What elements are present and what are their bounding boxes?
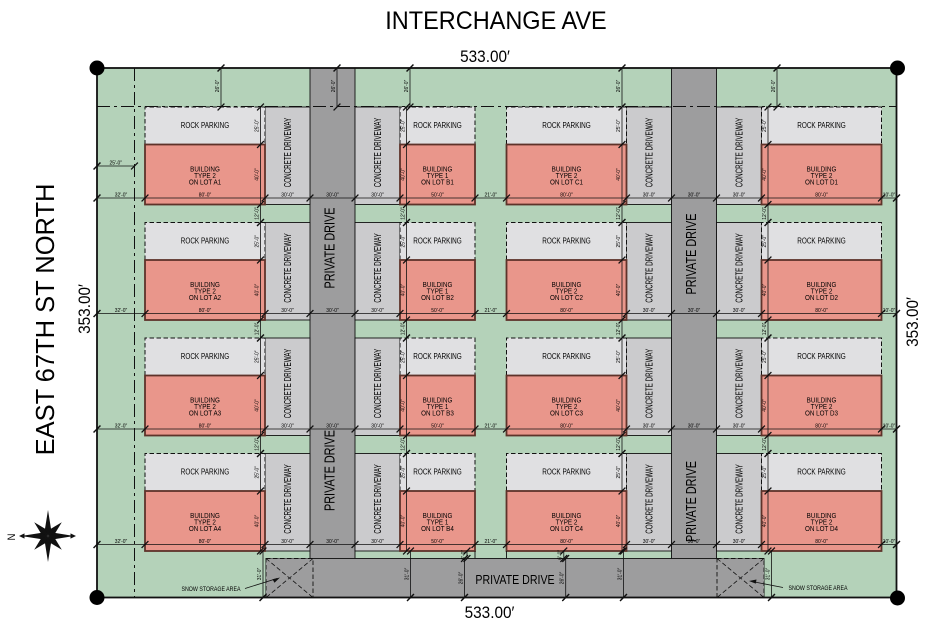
svg-text:80'-0": 80'-0" <box>815 539 828 545</box>
svg-text:CONCRETE DRIVEWAY: CONCRETE DRIVEWAY <box>373 464 384 534</box>
svg-text:21'-0": 21'-0" <box>484 423 497 429</box>
svg-text:26′-0″: 26′-0″ <box>771 80 777 93</box>
svg-text:12′-0″: 12′-0″ <box>254 323 260 336</box>
svg-text:ROCK PARKING: ROCK PARKING <box>413 120 462 130</box>
svg-text:30'-0": 30'-0" <box>733 192 746 198</box>
svg-text:12′-0″: 12′-0″ <box>400 323 406 336</box>
svg-text:25′-0″: 25′-0″ <box>109 160 122 166</box>
svg-text:ROCK PARKING: ROCK PARKING <box>181 351 230 361</box>
svg-text:40′-0″: 40′-0″ <box>400 284 406 297</box>
svg-text:31′-0″: 31′-0″ <box>257 568 263 581</box>
svg-text:ROCK PARKING: ROCK PARKING <box>181 236 230 246</box>
svg-text:PRIVATE DRIVE: PRIVATE DRIVE <box>475 573 555 587</box>
svg-text:30'-0": 30'-0" <box>326 192 339 198</box>
svg-text:ON LOT D4: ON LOT D4 <box>805 525 838 533</box>
svg-text:25′-0″: 25′-0″ <box>254 235 260 248</box>
svg-text:30'-0": 30'-0" <box>326 539 339 545</box>
svg-text:6′-0″: 6′-0″ <box>461 550 467 560</box>
svg-text:PRIVATE DRIVE: PRIVATE DRIVE <box>321 430 338 511</box>
svg-text:25′-0″: 25′-0″ <box>762 466 768 479</box>
svg-text:31′-0″: 31′-0″ <box>404 568 410 581</box>
svg-text:32'-0": 32'-0" <box>115 423 128 429</box>
svg-text:30'-0": 30'-0" <box>371 423 384 429</box>
svg-text:40′-0″: 40′-0″ <box>400 399 406 412</box>
svg-text:PRIVATE DRIVE: PRIVATE DRIVE <box>682 461 699 542</box>
svg-text:40′-0″: 40′-0″ <box>254 399 260 412</box>
svg-text:26′-0″: 26′-0″ <box>616 80 622 93</box>
svg-text:21'-0": 21'-0" <box>484 192 497 198</box>
svg-text:25′-0″: 25′-0″ <box>400 466 406 479</box>
svg-text:80'-0": 80'-0" <box>815 423 828 429</box>
svg-text:50'-0": 50'-0" <box>431 192 444 198</box>
svg-text:40′-0″: 40′-0″ <box>616 399 622 412</box>
svg-text:ROCK PARKING: ROCK PARKING <box>413 236 462 246</box>
svg-text:80'-0": 80'-0" <box>199 423 212 429</box>
svg-text:25′-0″: 25′-0″ <box>616 466 622 479</box>
svg-text:30'-0": 30'-0" <box>371 192 384 198</box>
svg-text:ON LOT C1: ON LOT C1 <box>550 179 583 187</box>
svg-text:INTERCHANGE AVE: INTERCHANGE AVE <box>385 7 606 35</box>
svg-text:CONCRETE DRIVEWAY: CONCRETE DRIVEWAY <box>373 233 384 303</box>
svg-text:ROCK PARKING: ROCK PARKING <box>181 467 230 477</box>
svg-text:25′-0″: 25′-0″ <box>762 119 768 132</box>
svg-text:32'-0": 32'-0" <box>115 539 128 545</box>
svg-text:12′-0″: 12′-0″ <box>616 207 622 220</box>
svg-text:25′-0″: 25′-0″ <box>254 350 260 363</box>
svg-text:26′-0″: 26′-0″ <box>331 80 337 93</box>
svg-text:ROCK PARKING: ROCK PARKING <box>542 120 591 130</box>
svg-text:30'-0": 30'-0" <box>688 192 701 198</box>
svg-text:ON LOT A3: ON LOT A3 <box>189 410 222 418</box>
svg-text:50'-0": 50'-0" <box>431 308 444 314</box>
svg-text:80'-0": 80'-0" <box>815 308 828 314</box>
svg-text:30'-0": 30'-0" <box>281 192 294 198</box>
svg-text:CONCRETE DRIVEWAY: CONCRETE DRIVEWAY <box>734 464 745 534</box>
svg-text:CONCRETE DRIVEWAY: CONCRETE DRIVEWAY <box>283 348 294 418</box>
svg-text:50'-0": 50'-0" <box>431 539 444 545</box>
svg-text:10'-0": 10'-0" <box>883 539 896 545</box>
svg-text:30'-0": 30'-0" <box>643 192 656 198</box>
svg-text:12′-0″: 12′-0″ <box>400 438 406 451</box>
svg-text:CONCRETE DRIVEWAY: CONCRETE DRIVEWAY <box>644 464 655 534</box>
svg-text:25′-0″: 25′-0″ <box>616 235 622 248</box>
svg-text:PRIVATE DRIVE: PRIVATE DRIVE <box>321 207 338 288</box>
svg-text:ROCK PARKING: ROCK PARKING <box>542 236 591 246</box>
svg-text:533.00′: 533.00′ <box>460 49 510 67</box>
svg-text:ROCK PARKING: ROCK PARKING <box>542 351 591 361</box>
svg-text:ON LOT A1: ON LOT A1 <box>189 179 222 187</box>
svg-text:80'-0": 80'-0" <box>815 192 828 198</box>
svg-text:40′-0″: 40′-0″ <box>616 515 622 528</box>
svg-text:40′-0″: 40′-0″ <box>254 515 260 528</box>
svg-text:ROCK PARKING: ROCK PARKING <box>797 236 846 246</box>
svg-text:25′-0″: 25′-0″ <box>254 119 260 132</box>
svg-text:SNOW STORAGE AREA: SNOW STORAGE AREA <box>181 587 240 593</box>
svg-text:40′-0″: 40′-0″ <box>400 515 406 528</box>
svg-text:80'-0": 80'-0" <box>560 423 573 429</box>
svg-text:CONCRETE DRIVEWAY: CONCRETE DRIVEWAY <box>283 117 294 187</box>
svg-text:40′-0″: 40′-0″ <box>762 515 768 528</box>
svg-text:26′-0″: 26′-0″ <box>458 572 464 585</box>
svg-text:CONCRETE DRIVEWAY: CONCRETE DRIVEWAY <box>734 348 745 418</box>
svg-text:80'-0": 80'-0" <box>560 192 573 198</box>
svg-text:CONCRETE DRIVEWAY: CONCRETE DRIVEWAY <box>644 348 655 418</box>
svg-text:25′-0″: 25′-0″ <box>616 350 622 363</box>
svg-text:SNOW STORAGE AREA: SNOW STORAGE AREA <box>788 586 847 592</box>
svg-text:40′-0″: 40′-0″ <box>762 399 768 412</box>
svg-text:ROCK PARKING: ROCK PARKING <box>797 351 846 361</box>
svg-text:30'-0": 30'-0" <box>733 423 746 429</box>
svg-text:ON LOT B2: ON LOT B2 <box>421 294 454 302</box>
svg-text:10'-0": 10'-0" <box>883 423 896 429</box>
svg-text:30'-0": 30'-0" <box>688 423 701 429</box>
svg-text:12′-0″: 12′-0″ <box>616 438 622 451</box>
svg-text:CONCRETE DRIVEWAY: CONCRETE DRIVEWAY <box>734 117 745 187</box>
svg-text:ON LOT C4: ON LOT C4 <box>550 525 583 533</box>
svg-text:12′-0″: 12′-0″ <box>616 323 622 336</box>
svg-text:ON LOT B3: ON LOT B3 <box>421 410 454 418</box>
svg-text:25′-0″: 25′-0″ <box>254 466 260 479</box>
svg-text:CONCRETE DRIVEWAY: CONCRETE DRIVEWAY <box>283 464 294 534</box>
svg-text:N: N <box>6 534 18 541</box>
svg-text:30'-0": 30'-0" <box>643 308 656 314</box>
svg-text:80'-0": 80'-0" <box>199 308 212 314</box>
svg-text:40′-0″: 40′-0″ <box>616 284 622 297</box>
svg-text:40′-0″: 40′-0″ <box>762 168 768 181</box>
svg-text:12′-0″: 12′-0″ <box>254 438 260 451</box>
svg-text:ON LOT D3: ON LOT D3 <box>805 410 838 418</box>
svg-text:26′-0″: 26′-0″ <box>215 80 221 93</box>
svg-text:32'-0": 32'-0" <box>115 192 128 198</box>
svg-text:30'-0": 30'-0" <box>643 539 656 545</box>
svg-text:6′-0″: 6′-0″ <box>557 550 563 560</box>
svg-text:30'-0": 30'-0" <box>733 539 746 545</box>
svg-text:CONCRETE DRIVEWAY: CONCRETE DRIVEWAY <box>734 233 745 303</box>
svg-text:50'-0": 50'-0" <box>431 423 444 429</box>
svg-text:12′-0″: 12′-0″ <box>254 207 260 220</box>
svg-text:12′-0″: 12′-0″ <box>400 207 406 220</box>
svg-text:PRIVATE DRIVE: PRIVATE DRIVE <box>682 213 699 294</box>
svg-text:40′-0″: 40′-0″ <box>254 284 260 297</box>
svg-text:30'-0": 30'-0" <box>733 308 746 314</box>
svg-text:10'-0": 10'-0" <box>883 308 896 314</box>
svg-text:353.00′: 353.00′ <box>905 297 923 347</box>
svg-text:ROCK PARKING: ROCK PARKING <box>413 351 462 361</box>
svg-text:CONCRETE DRIVEWAY: CONCRETE DRIVEWAY <box>283 233 294 303</box>
svg-text:25′-0″: 25′-0″ <box>400 235 406 248</box>
svg-text:533.00′: 533.00′ <box>465 605 515 623</box>
svg-text:CONCRETE DRIVEWAY: CONCRETE DRIVEWAY <box>373 117 384 187</box>
svg-text:40′-0″: 40′-0″ <box>400 168 406 181</box>
svg-text:30'-0": 30'-0" <box>371 308 384 314</box>
svg-text:40′-0″: 40′-0″ <box>254 168 260 181</box>
svg-text:40′-0″: 40′-0″ <box>762 284 768 297</box>
svg-text:30'-0": 30'-0" <box>281 423 294 429</box>
svg-text:32'-0": 32'-0" <box>115 308 128 314</box>
svg-text:25′-0″: 25′-0″ <box>400 350 406 363</box>
svg-text:ON LOT B4: ON LOT B4 <box>421 525 454 533</box>
svg-text:80'-0": 80'-0" <box>199 192 212 198</box>
svg-text:30'-0": 30'-0" <box>643 423 656 429</box>
svg-text:30'-0": 30'-0" <box>281 308 294 314</box>
svg-text:26′-0″: 26′-0″ <box>404 80 410 93</box>
svg-text:80'-0": 80'-0" <box>560 308 573 314</box>
svg-text:ROCK PARKING: ROCK PARKING <box>181 120 230 130</box>
svg-text:30'-0": 30'-0" <box>688 308 701 314</box>
svg-text:ON LOT A4: ON LOT A4 <box>189 525 222 533</box>
svg-text:CONCRETE DRIVEWAY: CONCRETE DRIVEWAY <box>373 348 384 418</box>
svg-text:80'-0": 80'-0" <box>199 539 212 545</box>
svg-text:10'-0": 10'-0" <box>883 192 896 198</box>
svg-text:ON LOT C2: ON LOT C2 <box>550 294 583 302</box>
svg-text:31′-0″: 31′-0″ <box>617 568 623 581</box>
svg-text:ROCK PARKING: ROCK PARKING <box>797 467 846 477</box>
svg-text:12′-0″: 12′-0″ <box>762 207 768 220</box>
svg-text:30'-0": 30'-0" <box>371 539 384 545</box>
svg-text:40′-0″: 40′-0″ <box>616 168 622 181</box>
svg-text:26′-0″: 26′-0″ <box>559 572 565 585</box>
svg-text:EAST 67TH ST NORTH: EAST 67TH ST NORTH <box>32 184 60 456</box>
svg-text:25′-0″: 25′-0″ <box>616 119 622 132</box>
svg-text:30'-0": 30'-0" <box>326 423 339 429</box>
svg-text:21'-0": 21'-0" <box>484 308 497 314</box>
svg-text:ON LOT A2: ON LOT A2 <box>189 294 222 302</box>
svg-text:ON LOT D1: ON LOT D1 <box>805 179 838 187</box>
svg-text:12′-0″: 12′-0″ <box>762 438 768 451</box>
svg-text:ROCK PARKING: ROCK PARKING <box>797 120 846 130</box>
svg-text:ON LOT C3: ON LOT C3 <box>550 410 583 418</box>
svg-text:ROCK PARKING: ROCK PARKING <box>542 467 591 477</box>
svg-text:CONCRETE DRIVEWAY: CONCRETE DRIVEWAY <box>644 117 655 187</box>
svg-text:30'-0": 30'-0" <box>326 308 339 314</box>
svg-text:353.00′: 353.00′ <box>77 284 95 334</box>
svg-text:21'-0": 21'-0" <box>484 539 497 545</box>
svg-text:CONCRETE DRIVEWAY: CONCRETE DRIVEWAY <box>644 233 655 303</box>
svg-text:ON LOT B1: ON LOT B1 <box>421 179 454 187</box>
svg-text:80'-0": 80'-0" <box>560 539 573 545</box>
svg-text:30'-0": 30'-0" <box>281 539 294 545</box>
svg-text:ROCK PARKING: ROCK PARKING <box>413 467 462 477</box>
svg-text:12′-0″: 12′-0″ <box>762 323 768 336</box>
svg-text:25′-0″: 25′-0″ <box>762 235 768 248</box>
svg-text:25′-0″: 25′-0″ <box>762 350 768 363</box>
svg-text:25′-0″: 25′-0″ <box>400 119 406 132</box>
svg-text:ON LOT D2: ON LOT D2 <box>805 294 838 302</box>
svg-text:31′-0″: 31′-0″ <box>765 568 771 581</box>
